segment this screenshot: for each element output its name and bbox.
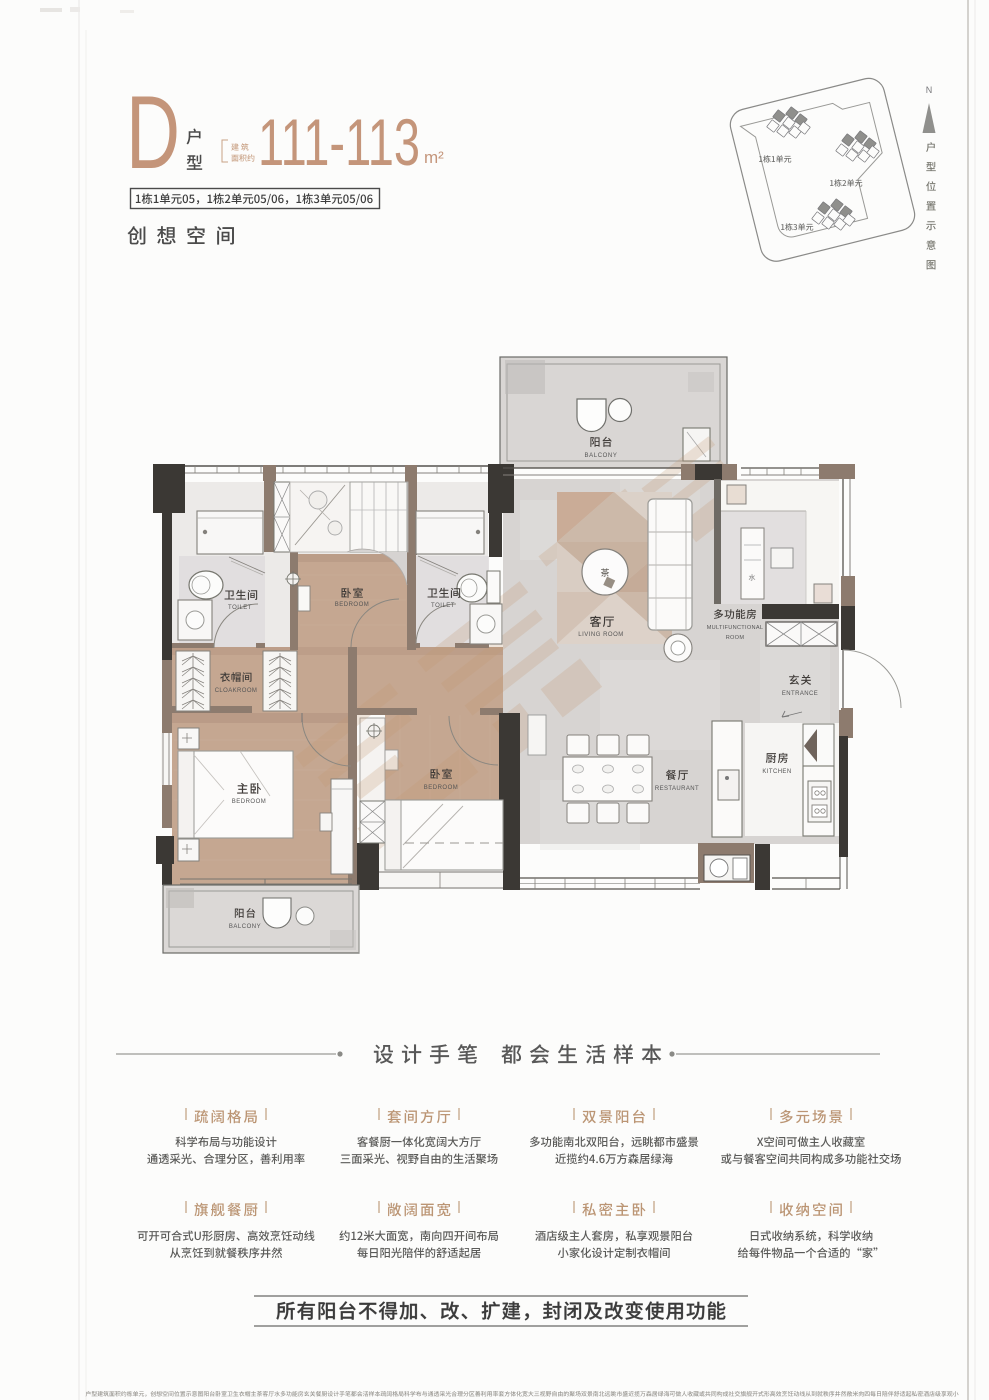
svg-text:BALCONY: BALCONY xyxy=(229,924,261,930)
svg-text:m²: m² xyxy=(424,148,444,167)
svg-text:MULTIFUNCTIONAL: MULTIFUNCTIONAL xyxy=(707,625,764,631)
svg-text:ROOM: ROOM xyxy=(726,635,745,641)
svg-text:BALCONY: BALCONY xyxy=(585,453,618,459)
svg-text:LIVING ROOM: LIVING ROOM xyxy=(578,632,624,638)
svg-text:BEDROOM: BEDROOM xyxy=(335,602,370,608)
svg-text:BEDROOM: BEDROOM xyxy=(232,799,267,805)
svg-text:KITCHEN: KITCHEN xyxy=(762,769,791,775)
svg-text:TOILET: TOILET xyxy=(228,605,252,611)
svg-text:BEDROOM: BEDROOM xyxy=(424,785,459,791)
svg-text:ENTRANCE: ENTRANCE xyxy=(782,691,818,697)
svg-text:TOILET: TOILET xyxy=(431,603,455,609)
svg-text:N: N xyxy=(926,85,933,95)
svg-text:D: D xyxy=(126,75,180,191)
svg-text:111-113: 111-113 xyxy=(258,105,420,179)
svg-text:RESTAURANT: RESTAURANT xyxy=(655,786,699,792)
svg-text:CLOAKROOM: CLOAKROOM xyxy=(215,688,258,694)
